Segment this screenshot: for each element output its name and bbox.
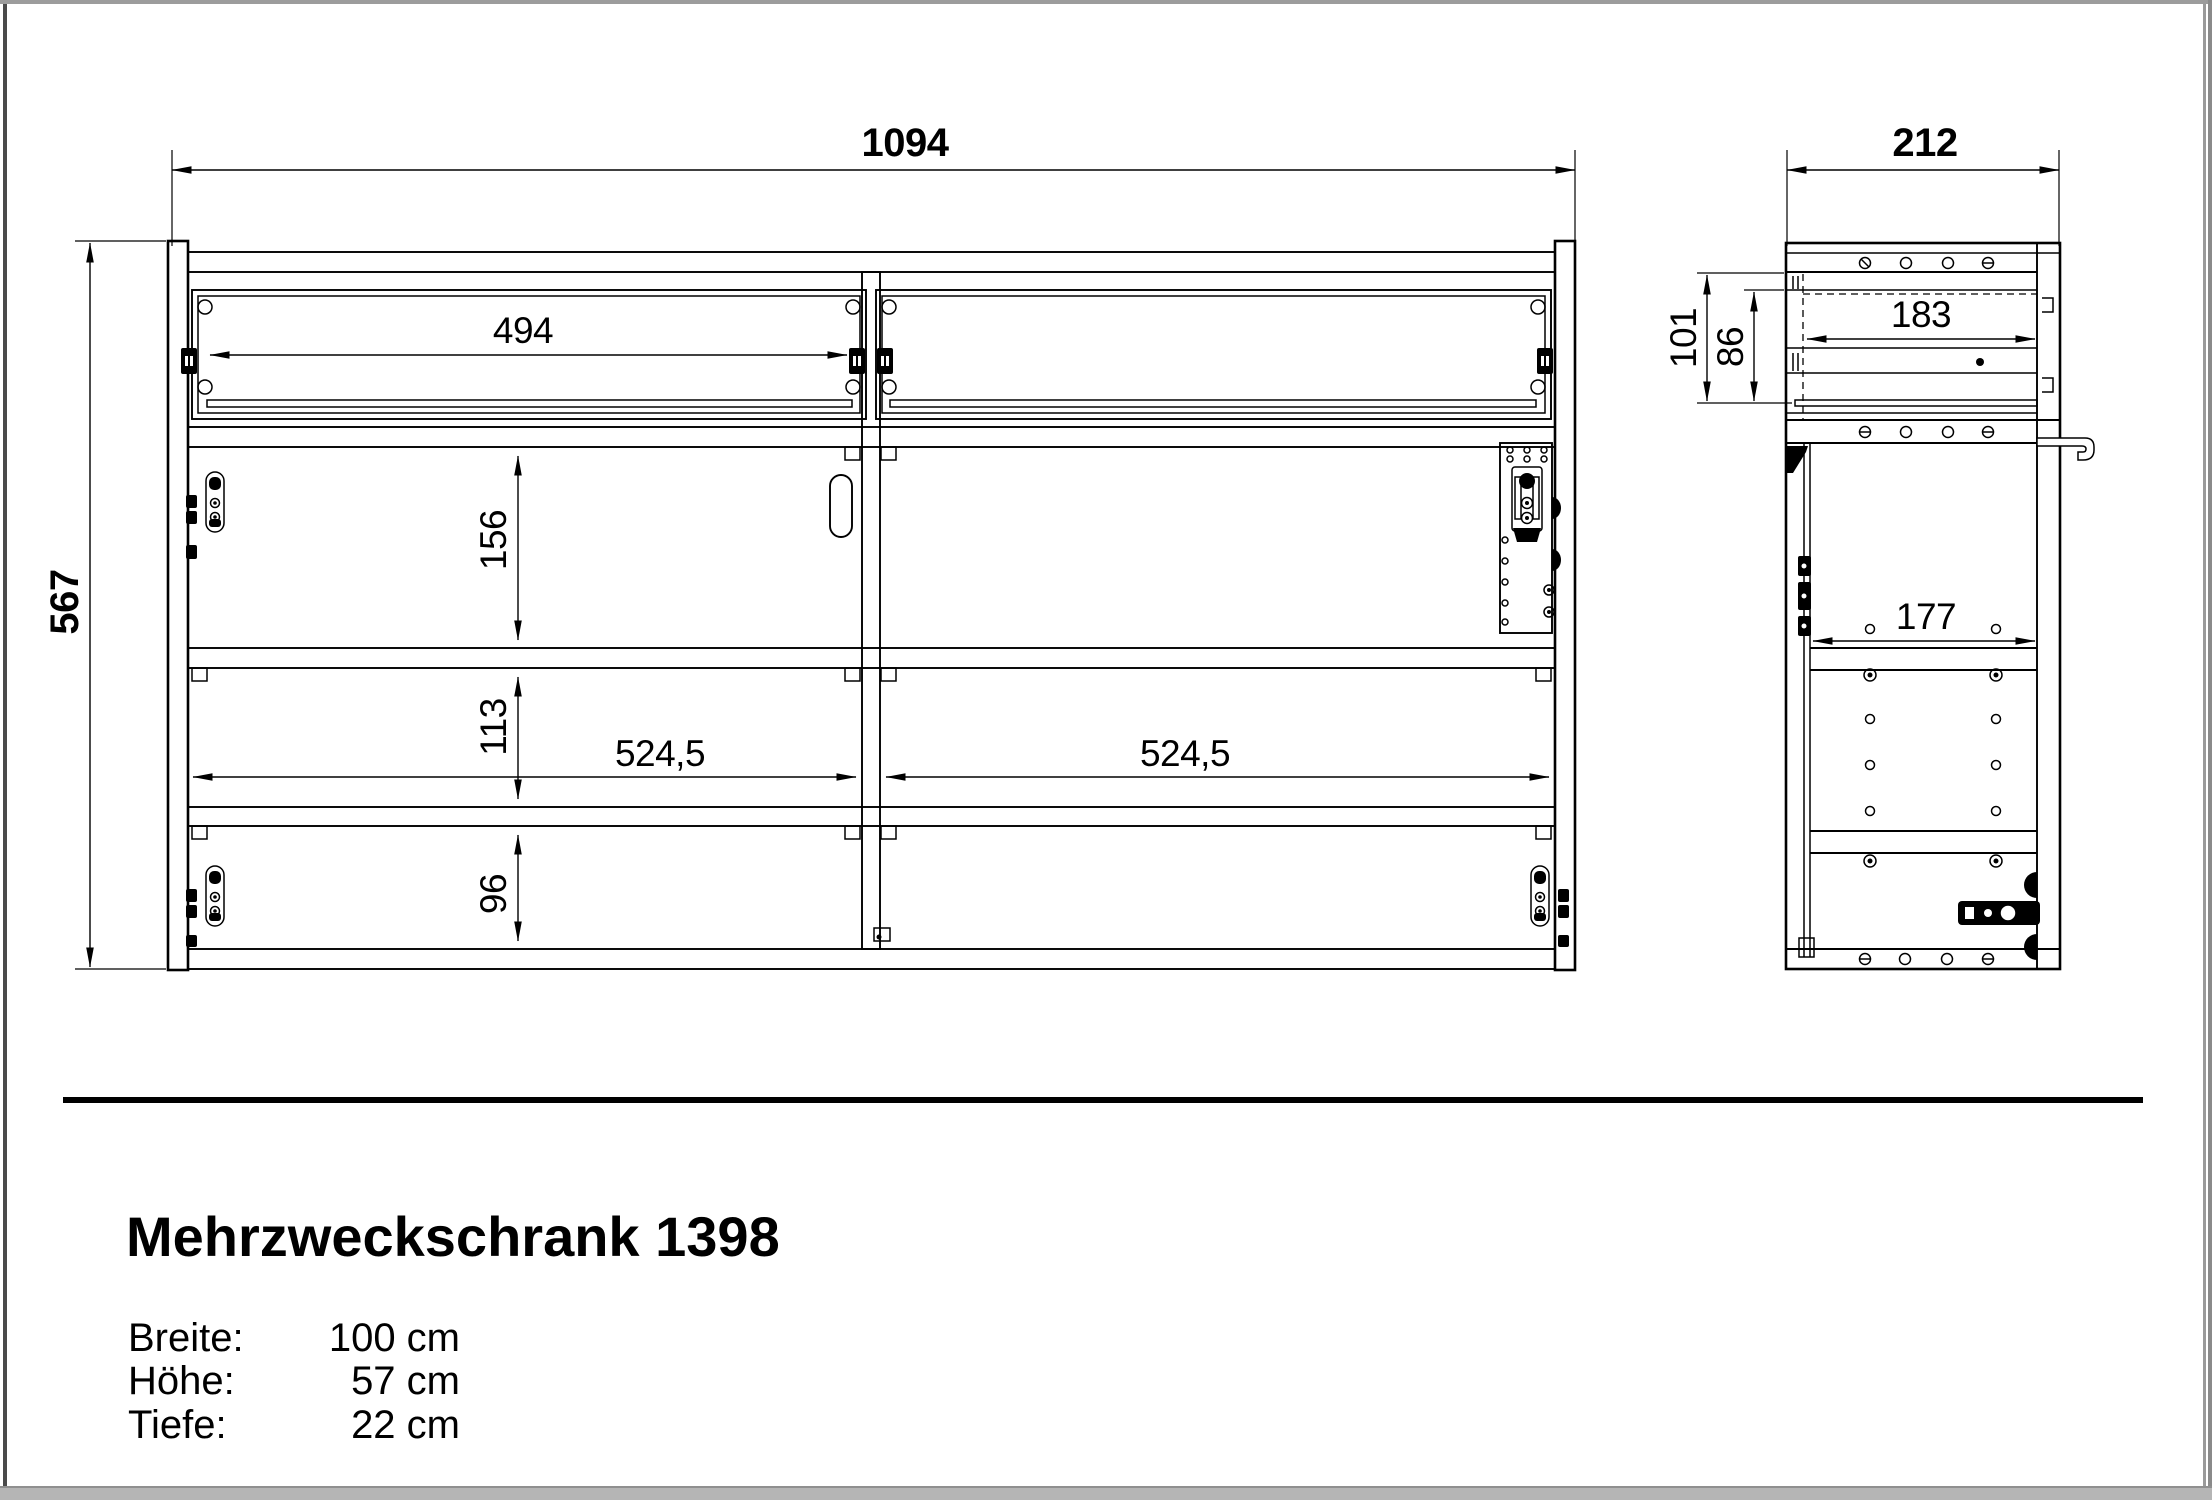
dim-side-drawer-zone-height: 101 xyxy=(1663,308,1704,368)
front-shelf-boards xyxy=(188,427,1555,826)
section-divider-rule xyxy=(63,1097,2143,1103)
drawer-hinge-clip-icon xyxy=(877,348,1553,374)
side-dimensions: 212 101 86 183 177 xyxy=(1663,121,2059,641)
spec-value-breite: 100 cm xyxy=(329,1316,460,1360)
page-border-right-outer xyxy=(2208,0,2212,1500)
side-bottom-hinge xyxy=(1958,872,2040,960)
page-border-left xyxy=(3,4,7,1487)
dim-front-drawer-cutout: 494 xyxy=(493,310,553,351)
front-cabinet-frame xyxy=(168,241,1575,970)
dim-side-overall-depth: 212 xyxy=(1892,121,1957,165)
front-lock-mechanism xyxy=(1500,443,1561,633)
dim-front-overall-height: 567 xyxy=(43,569,87,634)
front-shelf-clips xyxy=(192,447,1551,941)
drawer-hinge-clip-icon xyxy=(181,348,865,374)
page-frame xyxy=(0,0,2212,1500)
front-bottom-left-door-hinge xyxy=(186,866,224,947)
dim-front-upper-compartment: 156 xyxy=(473,510,514,570)
dim-side-compartment-inner-depth: 177 xyxy=(1896,596,1956,637)
dim-front-overall-width: 1094 xyxy=(862,121,950,165)
spec-label-tiefe: Tiefe: xyxy=(128,1403,227,1447)
page-border-bottom xyxy=(0,1488,2212,1500)
front-view: 1094 567 494 156 113 96 524,5 524,5 xyxy=(43,121,1575,970)
spec-label-hoehe: Höhe: xyxy=(128,1359,235,1403)
side-rail-clips xyxy=(2042,298,2053,392)
spec-value-hoehe: 57 cm xyxy=(351,1359,460,1403)
dim-side-drawer-inner-depth: 183 xyxy=(1891,294,1951,335)
spec-label-breite: Breite: xyxy=(128,1316,244,1360)
dim-front-left-compartment-width: 524,5 xyxy=(615,733,705,774)
page-border-bottom-edge xyxy=(0,1486,2212,1488)
side-view: 212 101 86 183 177 xyxy=(1663,121,2094,969)
front-door-handle-slot xyxy=(830,475,852,537)
product-title: Mehrzweckschrank 1398 xyxy=(126,1205,780,1268)
front-dimensions: 1094 567 494 156 113 96 524,5 524,5 xyxy=(43,121,1575,969)
drawing-page: 1094 567 494 156 113 96 524,5 524,5 xyxy=(0,0,2212,1500)
dim-front-lower-compartment: 96 xyxy=(473,874,514,914)
spec-value-tiefe: 22 cm xyxy=(351,1403,460,1447)
dim-side-drawer-front-height: 86 xyxy=(1710,327,1751,367)
front-bottom-right-door-hinge xyxy=(1531,866,1569,947)
front-right-drawer-front xyxy=(876,290,1553,419)
page-border-top xyxy=(0,0,2212,4)
wall-mount-hook-icon xyxy=(2037,438,2094,460)
dim-front-middle-compartment: 113 xyxy=(473,698,514,756)
side-door-edge xyxy=(1787,443,1814,957)
front-middle-left-door-hinge xyxy=(186,472,224,559)
technical-drawing: 1094 567 494 156 113 96 524,5 524,5 xyxy=(0,0,2212,1500)
dim-front-right-compartment-width: 524,5 xyxy=(1140,733,1230,774)
info-block: Mehrzweckschrank 1398 Breite: 100 cm Höh… xyxy=(126,1205,780,1447)
page-border-right xyxy=(2203,4,2206,1487)
